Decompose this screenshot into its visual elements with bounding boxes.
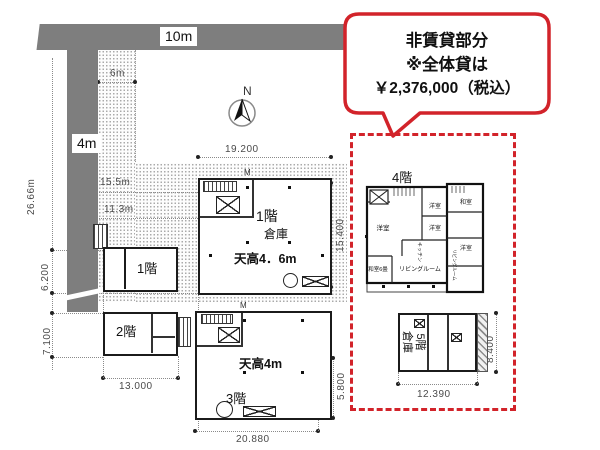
dim-11-3m: 11.3m (104, 204, 134, 215)
warehouse-1f-fan-icon (283, 273, 298, 288)
warehouse-1f-elevator-icon (216, 196, 240, 214)
callout-tax-note: （税込） (458, 80, 520, 97)
column-dot (246, 186, 249, 189)
dim-20880: 20.880 (236, 434, 270, 445)
dim-6200: 6.200 (40, 263, 51, 291)
dim-line-6m (98, 82, 135, 83)
guide-line (318, 420, 319, 431)
dim-line-20880 (195, 431, 318, 432)
guide-line (54, 313, 103, 314)
column-dot (246, 241, 249, 244)
dim-6m: 6m (110, 68, 125, 79)
dim-line-left-total (52, 58, 53, 370)
dim-total-left: 26.66m (26, 179, 37, 215)
column-dot (321, 254, 324, 257)
warehouse-5f-use-label: 倉庫 (401, 331, 413, 353)
warehouse-1f-stairs-icon (203, 181, 237, 192)
dim-marker (193, 429, 197, 433)
road-left-width-label: 4m (72, 134, 101, 153)
site-plan-canvas: 10m 4m N 26.66m 6.200 7.100 6m (0, 0, 600, 450)
warehouse-3f-label: 3階 (226, 388, 246, 407)
interior-wall (447, 315, 449, 370)
dim-15400: 15.400 (335, 218, 346, 252)
room-bed-left-label: 洋室 (377, 223, 391, 232)
column-dot (301, 371, 304, 374)
warehouse-1f-use-label: 倉庫 (264, 225, 288, 242)
dim-line-13000 (103, 378, 178, 379)
m-mark: M (240, 301, 247, 310)
guide-line (178, 356, 179, 378)
callout-line1: 非賃貸部分 (345, 27, 549, 51)
warehouse-3f-ceiling-label: 天高4m (239, 353, 282, 372)
interior-wall (124, 249, 126, 289)
warehouse-3f-elevator-icon (218, 327, 240, 343)
warehouse-1f-ceiling-label: 天高4．6m (234, 248, 297, 267)
annex-2f-stairs-icon (178, 317, 191, 347)
dim-12390: 12.390 (417, 389, 451, 400)
interior-wall (151, 314, 153, 353)
dim-5800: 5.800 (336, 372, 347, 400)
warehouse-5f-label-group: 5階 倉庫 (398, 320, 426, 364)
road-top-width-label: 10m (160, 27, 197, 46)
callout-line2: ※全体貸は (345, 51, 549, 75)
dim-7100: 7.100 (42, 327, 53, 355)
building-annex-2f (103, 312, 178, 356)
guide-line (477, 372, 478, 384)
interior-wall (200, 216, 252, 218)
warehouse-5f-hatch-strip (477, 313, 488, 372)
interior-wall (252, 180, 254, 218)
interior-wall (151, 336, 175, 338)
dim-15-5m: 15.5m (100, 177, 130, 188)
dim-marker (196, 155, 200, 159)
annex-1f-label: 1階 (137, 258, 157, 277)
room-living-right-label: リビングルーム (451, 249, 458, 281)
interior-wall (197, 345, 243, 347)
guide-line (398, 372, 399, 384)
north-arrow-icon (222, 96, 262, 130)
dim-line-19200 (198, 157, 331, 158)
dim-19200: 19.200 (225, 144, 259, 155)
warehouse-3f-vent-icon (243, 406, 276, 417)
column-dot (209, 254, 212, 257)
interior-wall (427, 315, 429, 370)
road-left (67, 24, 98, 312)
warehouse-1f-label: 1階 (256, 206, 278, 226)
m-mark: M (244, 168, 251, 177)
dim-marker (494, 370, 498, 374)
callout-line3: ￥2,376,000（税込） (345, 76, 549, 98)
warehouse-3f-stairs-icon (201, 314, 233, 324)
dim-13000: 13.000 (119, 381, 153, 392)
room-tatami6-label: 和室6畳 (368, 265, 388, 273)
dim-line-12390 (398, 384, 477, 385)
north-label: N (243, 84, 252, 98)
room-tatami-right-label: 和室 (460, 198, 472, 206)
room-bed-right-label: 洋室 (460, 244, 472, 252)
room-bed-top-label: 洋室 (429, 202, 441, 210)
dim-marker (133, 80, 137, 84)
callout-yen-symbol: ￥ (374, 80, 390, 97)
dim-line-8400 (496, 313, 497, 372)
dim-line-5800 (333, 358, 334, 418)
column-dot (243, 319, 246, 322)
annex-1f-stairs-icon (93, 224, 108, 249)
room-bed-mid-label: 洋室 (429, 224, 441, 232)
plan-4f-drawing: 洋室 洋室 洋室 キッチン 和室6畳 リビングルーム 和室 洋室 リビングルーム (362, 180, 487, 295)
column-dot (301, 319, 304, 322)
warehouse-1f-vent-icon (302, 276, 329, 287)
warehouse-5f-label: 5階 (414, 333, 426, 350)
warehouse-5f-window-icon (451, 333, 462, 342)
column-dot (288, 186, 291, 189)
column-dot (288, 241, 291, 244)
dim-marker (494, 311, 498, 315)
dim-marker (329, 155, 333, 159)
room-kitchen-label: キッチン (416, 242, 422, 262)
guide-line (54, 357, 103, 358)
callout-amount: 2,376,000 (389, 80, 458, 97)
annex-2f-label: 2階 (116, 321, 136, 340)
room-living-label: リビングルーム (399, 265, 441, 273)
